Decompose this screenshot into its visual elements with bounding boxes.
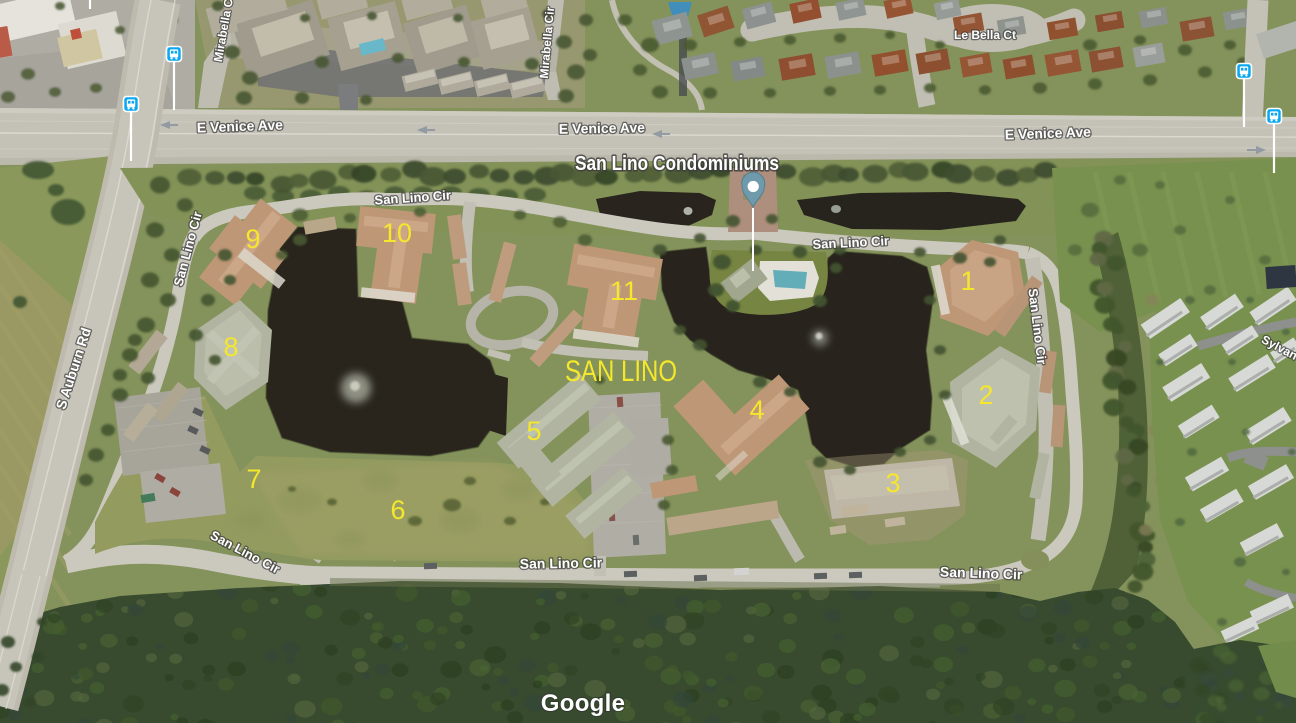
svg-text:SAN LINO: SAN LINO xyxy=(565,355,677,388)
svg-text:Google: Google xyxy=(541,690,625,717)
svg-text:9: 9 xyxy=(245,224,260,254)
svg-text:3: 3 xyxy=(885,468,900,498)
svg-text:7: 7 xyxy=(246,464,261,494)
svg-text:2: 2 xyxy=(978,380,993,410)
svg-text:10: 10 xyxy=(382,218,412,248)
svg-text:11: 11 xyxy=(610,276,638,306)
svg-text:E Venice Ave: E Venice Ave xyxy=(1005,123,1092,142)
svg-text:5: 5 xyxy=(526,416,541,446)
svg-text:1: 1 xyxy=(960,266,975,296)
svg-text:Le Bella Ct: Le Bella Ct xyxy=(954,28,1016,42)
svg-text:E Venice Ave: E Venice Ave xyxy=(559,119,646,137)
svg-text:6: 6 xyxy=(390,495,405,525)
svg-text:San Lino Cir: San Lino Cir xyxy=(520,554,603,571)
svg-text:San Lino Cir: San Lino Cir xyxy=(940,564,1024,583)
svg-text:San Lino Condominiums: San Lino Condominiums xyxy=(575,153,779,175)
svg-text:8: 8 xyxy=(223,332,238,362)
svg-text:E Venice Ave: E Venice Ave xyxy=(197,116,284,135)
svg-text:4: 4 xyxy=(749,395,764,425)
